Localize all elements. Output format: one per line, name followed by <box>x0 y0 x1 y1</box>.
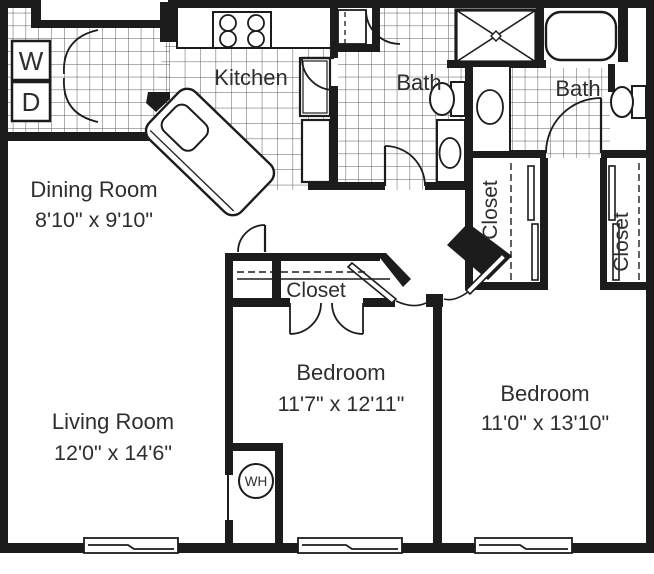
wall-segment <box>168 0 654 8</box>
wall-segment <box>646 0 654 553</box>
wall-segment <box>31 20 170 28</box>
dryer-label: D <box>22 87 41 117</box>
wall-segment <box>608 64 615 92</box>
room-dims-bedroom-middle: 11'7" x 12'11" <box>278 392 405 416</box>
wall-segment <box>272 261 281 299</box>
wall-segment <box>0 0 8 553</box>
closet-french-doors <box>290 303 363 334</box>
wall-segment <box>225 253 233 475</box>
wall-segment <box>540 158 548 290</box>
sliding-door-panel <box>532 224 538 280</box>
wall-segment <box>600 282 646 290</box>
closet-label-left: Closet <box>479 180 502 240</box>
wall-segment <box>225 298 290 307</box>
wall-segment <box>372 8 380 46</box>
closet-label-middle: Closet <box>286 279 346 302</box>
window-living <box>84 538 178 553</box>
room-dims-living: 12'0" x 14'6" <box>54 441 172 465</box>
room-label-dining: Dining Room <box>30 177 157 202</box>
room-label-living: Living Room <box>52 409 174 434</box>
hall-door <box>238 225 265 252</box>
windows <box>84 538 572 553</box>
closet-label-right: Closet <box>610 212 633 272</box>
refrigerator <box>300 58 330 116</box>
wall-segment <box>376 253 411 287</box>
water-heater-label: WH <box>245 474 268 489</box>
wall-segment <box>618 8 628 62</box>
shower-stall <box>456 10 536 62</box>
window-bedroom-right <box>475 538 572 553</box>
room-label-bedroom-middle: Bedroom <box>296 360 385 385</box>
wall-segment <box>225 520 233 553</box>
room-label-kitchen: Kitchen <box>214 65 287 90</box>
window-bedroom-middle <box>298 538 402 553</box>
entry-closet-box <box>338 10 366 44</box>
wall-segment <box>308 182 385 190</box>
floor-plan-canvas: Kitchen Bath Bath Dining Room 8'10" x 9'… <box>0 0 654 574</box>
wall-segment <box>275 443 283 553</box>
room-dims-bedroom-right: 11'0" x 13'10" <box>481 411 609 435</box>
room-label-bath-left: Bath <box>396 70 441 95</box>
washer-label: W <box>19 46 44 76</box>
kitchen-cabinet <box>302 120 330 182</box>
sliding-door-panel <box>609 166 615 220</box>
bedroom-middle-door <box>348 263 426 306</box>
floor-plan: Kitchen Bath Bath Dining Room 8'10" x 9'… <box>0 0 654 574</box>
wall-segment <box>433 305 442 553</box>
bathtub <box>546 12 616 60</box>
room-dims-dining: 8'10" x 9'10" <box>35 208 153 232</box>
wall-segment <box>225 253 380 261</box>
room-label-bedroom-right: Bedroom <box>500 381 589 406</box>
wall-segment <box>601 150 646 158</box>
sliding-door-panel <box>528 166 534 220</box>
wall-segment <box>330 86 338 190</box>
toilet <box>611 86 646 118</box>
wall-segment <box>600 158 607 290</box>
room-label-bath-right: Bath <box>555 76 600 101</box>
